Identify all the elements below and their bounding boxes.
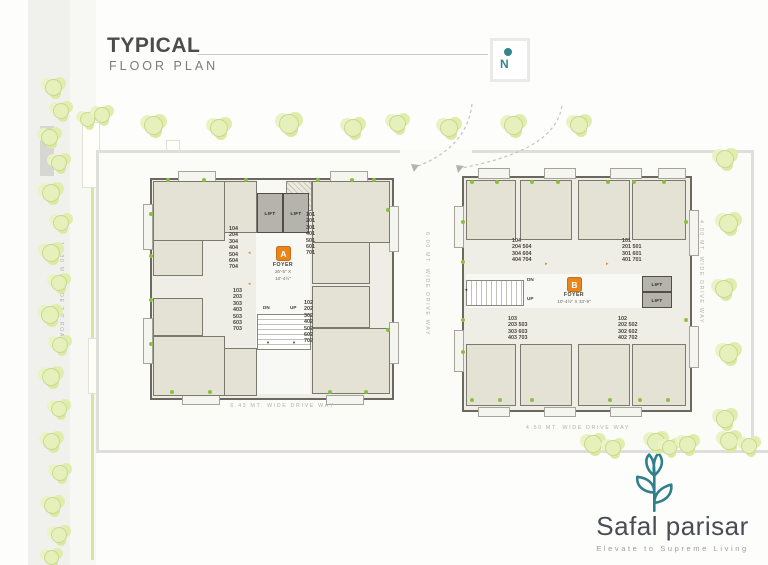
stair-arrow-icon: ◄ xyxy=(464,287,468,292)
driveway-label-between: 6.00 MT. WIDE DRIVE WAY xyxy=(424,232,430,336)
tree-icon xyxy=(51,527,67,543)
balcony xyxy=(610,407,642,417)
plant-dot-icon xyxy=(149,254,153,258)
room xyxy=(153,181,225,241)
tree-icon xyxy=(715,280,733,298)
tree-icon xyxy=(720,432,738,450)
balcony xyxy=(454,206,464,248)
block-a-foyer-dim: 10'-4½" xyxy=(256,276,310,281)
tree-icon xyxy=(43,433,60,450)
tree-icon xyxy=(51,401,67,417)
tree-icon xyxy=(716,410,734,428)
tree-icon xyxy=(51,155,67,171)
room xyxy=(520,344,572,406)
block-a-units-bottom-left: 103203303403503603703 xyxy=(226,288,242,333)
balcony xyxy=(143,204,153,250)
plant-dot-icon xyxy=(372,178,376,182)
plant-dot-icon xyxy=(386,208,390,212)
page-title: TYPICAL xyxy=(107,34,200,58)
north-indicator xyxy=(490,38,530,82)
tree-icon xyxy=(52,465,68,481)
plant-dot-icon xyxy=(470,398,474,402)
lift-shaft: LIFT xyxy=(257,193,283,233)
balcony xyxy=(478,407,510,417)
balcony xyxy=(544,407,576,417)
tree-icon xyxy=(570,116,588,134)
block-a-units-bottom-right: 102202302402502602702 xyxy=(304,300,320,345)
unit-number: 401 701 xyxy=(622,257,662,263)
driveway-label-below-b: 4.50 MT. WIDE DRIVE WAY xyxy=(498,425,658,431)
brand-tagline: Elevate to Supreme Living xyxy=(580,544,765,553)
balcony xyxy=(143,318,153,364)
tree-icon xyxy=(504,116,523,135)
balcony xyxy=(389,206,399,252)
stairs-dn-label: DN xyxy=(527,277,534,282)
room xyxy=(224,348,257,396)
tree-icon xyxy=(719,344,738,363)
stairs-dn-label: DN xyxy=(263,305,270,310)
tree-icon xyxy=(662,440,677,455)
tree-icon xyxy=(719,214,738,233)
balcony xyxy=(689,326,699,368)
block-a-badge: A xyxy=(276,246,291,261)
unit-number: 701 xyxy=(306,250,322,256)
plant-dot-icon xyxy=(149,342,153,346)
plant-dot-icon xyxy=(498,398,502,402)
plant-dot-icon xyxy=(530,398,534,402)
driveway-label-below-a: 6.43 MT. WIDE DRIVE WAY xyxy=(205,403,360,409)
stair-arrow-icon: ▼ xyxy=(292,340,296,345)
plant-dot-icon xyxy=(166,178,170,182)
room xyxy=(153,240,203,276)
tree-icon xyxy=(51,275,67,291)
stairs-up-label: UP xyxy=(290,305,296,310)
plant-dot-icon xyxy=(470,180,474,184)
unit-number: 704 xyxy=(222,264,238,270)
balcony xyxy=(544,168,576,179)
north-label: N xyxy=(500,57,509,71)
plant-dot-icon xyxy=(149,212,153,216)
plant-dot-icon xyxy=(208,390,212,394)
stairs-up-label: UP xyxy=(527,296,533,301)
block-a-units-top-right: 101201301401501601701 xyxy=(306,212,322,257)
unit-number: 404 704 xyxy=(512,257,552,263)
lift-shaft: LIFT xyxy=(642,276,672,292)
room xyxy=(466,180,516,240)
plant-dot-icon xyxy=(244,178,248,182)
stair-arrow-icon: ▼ xyxy=(266,340,270,345)
plant-dot-icon xyxy=(149,298,153,302)
unit-number: 403 703 xyxy=(508,335,548,341)
plant-dot-icon xyxy=(170,390,174,394)
plant-dot-icon xyxy=(461,350,465,354)
tree-icon xyxy=(344,119,362,137)
room xyxy=(632,344,686,406)
plant-dot-icon xyxy=(328,390,332,394)
balcony xyxy=(389,322,399,364)
door-arrow-icon: ◂ xyxy=(248,250,251,256)
plant-dot-icon xyxy=(684,220,688,224)
room xyxy=(578,344,630,406)
tree-icon xyxy=(44,550,59,565)
tree-icon xyxy=(440,119,458,137)
tree-icon xyxy=(584,435,602,453)
plant-dot-icon xyxy=(666,398,670,402)
title-rule xyxy=(198,54,488,55)
north-dot-icon xyxy=(504,48,512,56)
tree-icon xyxy=(42,244,60,262)
block-b-units-bottom-right: 102202 502302 602402 702 xyxy=(618,316,658,342)
plant-dot-icon xyxy=(662,180,666,184)
unit-number: 402 702 xyxy=(618,335,658,341)
plant-dot-icon xyxy=(202,178,206,182)
stairs xyxy=(466,280,524,306)
door-arrow-icon: ▸ xyxy=(606,261,609,267)
block-b-foyer-label: FOYER xyxy=(540,292,608,298)
tree-icon xyxy=(279,114,299,134)
tree-icon xyxy=(52,337,68,353)
tree-icon xyxy=(53,103,69,119)
block-b-units-top-left: 104204 504304 604404 704 xyxy=(512,238,552,264)
plant-dot-icon xyxy=(364,390,368,394)
plant-dot-icon xyxy=(316,178,320,182)
door-arrow-icon: ◂ xyxy=(248,281,251,287)
block-a-foyer-dim: 26'-5" X xyxy=(256,269,310,274)
plant-dot-icon xyxy=(461,318,465,322)
tree-icon xyxy=(44,497,61,514)
tree-icon xyxy=(389,115,406,132)
room xyxy=(466,344,516,406)
plant-dot-icon xyxy=(556,180,560,184)
lift-shaft: LIFT xyxy=(642,292,672,308)
plant-dot-icon xyxy=(350,178,354,182)
tree-icon xyxy=(53,215,69,231)
tree-icon xyxy=(679,436,696,453)
balcony xyxy=(658,168,686,179)
tree-icon xyxy=(605,440,621,456)
plant-dot-icon xyxy=(608,398,612,402)
block-b-badge: B xyxy=(567,277,582,292)
balcony xyxy=(610,168,642,179)
room xyxy=(153,336,225,396)
page-subtitle: FLOOR PLAN xyxy=(109,59,218,73)
room xyxy=(312,181,390,243)
plant-dot-icon xyxy=(638,398,642,402)
block-b-units-bottom-left: 103203 503303 603403 703 xyxy=(508,316,548,342)
tree-icon xyxy=(41,306,59,324)
plant-dot-icon xyxy=(461,260,465,264)
tree-icon xyxy=(741,438,757,454)
tree-icon xyxy=(80,112,95,127)
tree-icon xyxy=(45,79,62,96)
unit-number: 703 xyxy=(226,326,242,332)
room xyxy=(312,328,390,394)
block-b-foyer-dim: 10'-4½" X 33'-9" xyxy=(540,299,608,304)
floor-plan-canvas: TYPICAL FLOOR PLAN N LIFT LIFT A FOYER 2… xyxy=(0,0,768,565)
room xyxy=(520,180,572,240)
plant-dot-icon xyxy=(684,318,688,322)
plant-dot-icon xyxy=(632,180,636,184)
block-b-units-top-right: 101201 501301 601401 701 xyxy=(622,238,662,264)
plant-dot-icon xyxy=(530,180,534,184)
room xyxy=(578,180,630,240)
brand-name: Safal parisar xyxy=(580,511,765,542)
plant-dot-icon xyxy=(461,220,465,224)
driveway-label-right: 4.00 MT. WIDE DRIVE WAY xyxy=(698,220,704,324)
tree-icon xyxy=(94,107,110,123)
logo-flower-icon xyxy=(620,452,686,512)
block-a-foyer-label: FOYER xyxy=(256,262,310,268)
unit-number: 702 xyxy=(304,338,320,344)
plant-dot-icon xyxy=(386,328,390,332)
block-a-units-top-left: 104204304404504604704 xyxy=(222,226,238,271)
plant-dot-icon xyxy=(606,180,610,184)
tree-icon xyxy=(144,116,163,135)
tree-icon xyxy=(42,184,60,202)
balcony xyxy=(478,168,510,179)
tree-icon xyxy=(41,129,58,146)
tree-icon xyxy=(210,119,228,137)
plant-dot-icon xyxy=(495,180,499,184)
room xyxy=(632,180,686,240)
room xyxy=(153,298,203,336)
room xyxy=(312,286,370,328)
tree-icon xyxy=(42,368,60,386)
tree-icon xyxy=(716,150,734,168)
